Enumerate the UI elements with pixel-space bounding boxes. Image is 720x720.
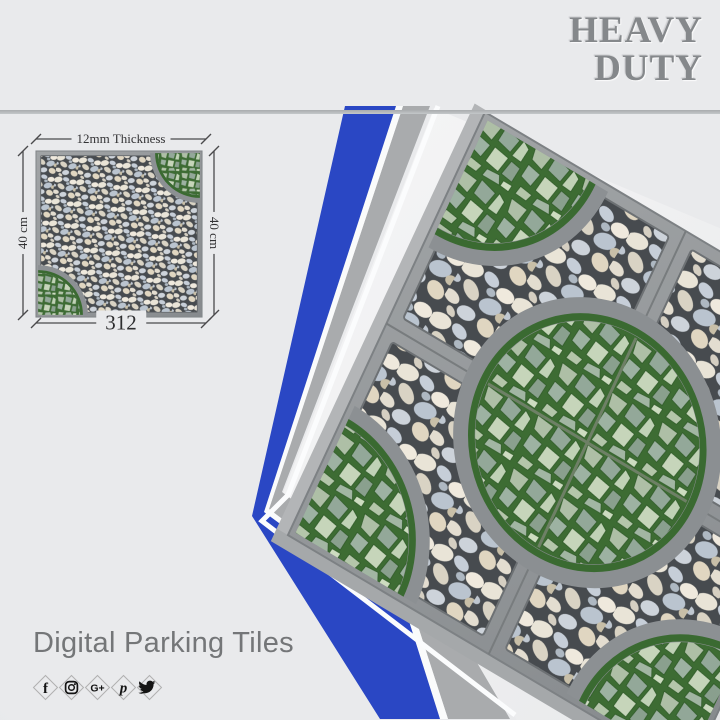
thickness-label: 12mm Thickness (72, 131, 171, 147)
header-divider (0, 110, 720, 114)
sample-tile (36, 151, 202, 317)
svg-text:G+: G+ (90, 683, 104, 695)
height-label: 40 cm (15, 212, 31, 254)
size-code: 312 (96, 311, 146, 336)
instagram-icon[interactable] (58, 674, 85, 701)
google-plus-icon[interactable]: G+ (84, 674, 111, 701)
product-title: Digital Parking Tiles (33, 627, 294, 660)
svg-text:f: f (43, 681, 49, 697)
poster: HEAVY DUTY 12mm Thickness 40 cm 40 cm 31… (0, 0, 720, 720)
twitter-icon[interactable] (136, 674, 163, 701)
pinterest-icon[interactable]: p (110, 674, 137, 701)
badge-line2: DUTY (569, 50, 703, 88)
svg-text:p: p (118, 681, 128, 697)
badge-line1: HEAVY (569, 12, 703, 50)
social-links: f G+ p (32, 674, 162, 701)
heavy-duty-badge: HEAVY DUTY (569, 12, 703, 88)
facebook-icon[interactable]: f (32, 674, 59, 701)
width-label: 40 cm (206, 212, 222, 254)
poster-artwork (0, 0, 720, 720)
